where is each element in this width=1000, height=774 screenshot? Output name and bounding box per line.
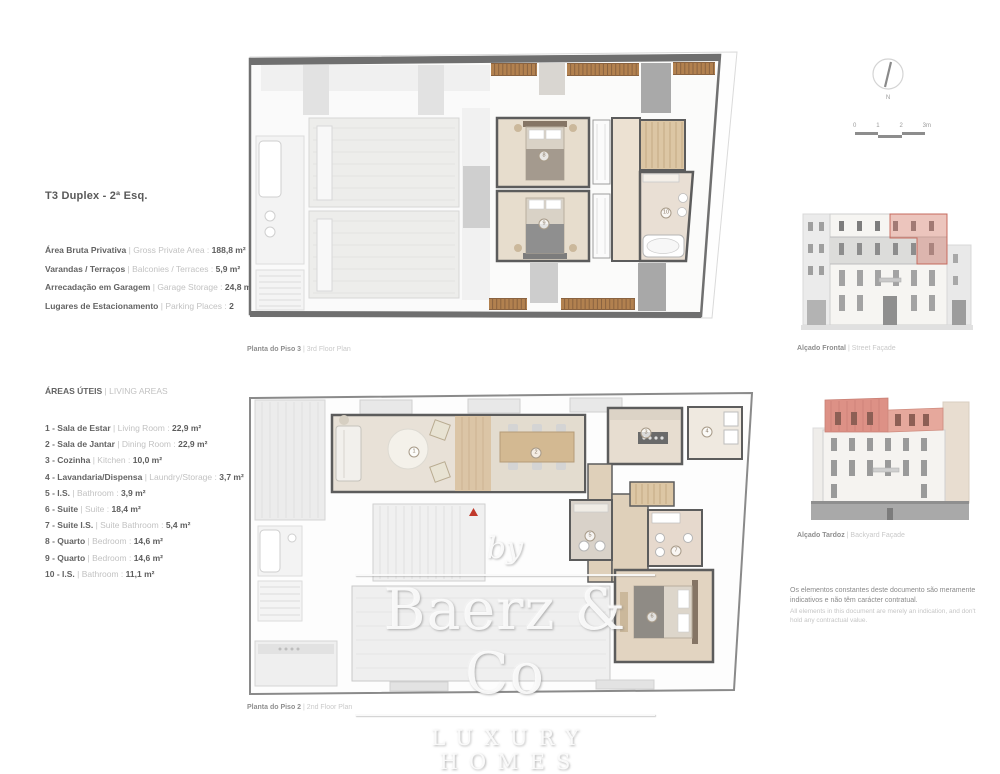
room-number-marker: 8 <box>539 151 550 162</box>
upper-plan-caption: Planta do Piso 3 | 3rd Floor Plan <box>247 346 351 353</box>
area-line: 6 - Suite | Suite : 18,4 m² <box>45 501 260 517</box>
front-facade-caption: Alçado Frontal | Street Façade <box>797 345 896 352</box>
disclaimer-en: All elements in this document are merely… <box>790 607 986 625</box>
scale-bar: 0123m <box>853 123 931 139</box>
summary-line: Lugares de Estacionamento | Parking Plac… <box>45 297 255 316</box>
back-facade <box>795 388 980 528</box>
summary-line: Varandas / Terraços | Balconies / Terrac… <box>45 260 255 279</box>
scale-label: 1 <box>876 123 879 129</box>
room-number-marker: 7 <box>671 546 682 557</box>
summary-line: Arrecadação em Garagem | Garage Storage … <box>45 278 255 297</box>
room-number-marker: 10 <box>661 208 672 219</box>
north-label: N <box>866 95 910 101</box>
upper-floor-plan <box>243 48 748 320</box>
area-line: 3 - Cozinha | Kitchen : 10,0 m² <box>45 452 260 468</box>
stairs <box>630 482 674 506</box>
wardrobe <box>593 194 610 258</box>
watermark-tagline: LUXURY HOMES <box>355 726 655 774</box>
back-facade-caption: Alçado Tardoz | Backyard Façade <box>797 532 905 539</box>
north-arrow: N <box>866 56 910 101</box>
summary-line: Área Bruta Privativa | Gross Private Are… <box>45 241 255 260</box>
room-number-marker: 5 <box>585 531 596 542</box>
room-number-marker: 3 <box>641 428 652 439</box>
area-line: 5 - I.S. | Bathroom : 3,9 m² <box>45 485 260 501</box>
roof-highlight <box>825 398 943 432</box>
area-line: 4 - Lavandaria/Dispensa | Laundry/Storag… <box>45 469 260 485</box>
upper-plan-adjacent-unit <box>253 65 490 311</box>
scale-label: 3m <box>923 123 931 129</box>
plant <box>339 415 349 425</box>
areas-list: 1 - Sala de Estar | Living Room : 22,9 m… <box>45 420 260 582</box>
brochure-page: { "header": { "title": "T3 Duplex - 2ª E… <box>0 0 1000 750</box>
area-line: 2 - Sala de Jantar | Dining Room : 22,9 … <box>45 436 260 452</box>
area-line: 8 - Quarto | Bedroom : 14,6 m² <box>45 533 260 549</box>
room-number-marker: 4 <box>702 427 713 438</box>
area-line: 10 - I.S. | Bathroom : 11,1 m² <box>45 566 260 582</box>
front-facade <box>795 192 980 342</box>
areas-title: ÁREAS ÚTEIS | LIVING AREAS <box>45 386 168 396</box>
lower-plan-caption: Planta do Piso 2 | 2nd Floor Plan <box>247 704 352 711</box>
living-dining-room <box>332 415 585 492</box>
balcony-deck-top <box>491 62 715 76</box>
bathroom-7 <box>648 510 702 566</box>
room-number-marker: 9 <box>539 219 550 230</box>
scale-label: 0 <box>853 123 856 129</box>
room-number-marker: 2 <box>531 448 542 459</box>
disclaimer: Os elementos constantes deste documento … <box>790 586 986 625</box>
suite-6 <box>615 570 713 662</box>
area-line: 7 - Suite I.S. | Suite Bathroom : 5,4 m² <box>45 517 260 533</box>
watermark-rule-bottom <box>355 714 655 716</box>
room-number-marker: 6 <box>647 612 658 623</box>
lower-floor-plan <box>240 386 760 704</box>
laundry <box>688 407 742 459</box>
room-number-marker: 1 <box>409 447 420 458</box>
balcony-deck-bottom <box>489 298 635 310</box>
unit-title: T3 Duplex - 2ª Esq. <box>45 190 148 202</box>
scale-label: 2 <box>899 123 902 129</box>
area-line: 1 - Sala de Estar | Living Room : 22,9 m… <box>45 420 260 436</box>
scale-bar-labels: 0123m <box>853 123 931 129</box>
compass-icon <box>866 56 910 94</box>
bench <box>620 592 628 632</box>
scale-bar-graphic <box>853 131 931 139</box>
area-line: 9 - Quarto | Bedroom : 14,6 m² <box>45 550 260 566</box>
summary-block: Área Bruta Privativa | Gross Private Are… <box>45 241 255 315</box>
stairs <box>640 120 685 170</box>
hallway <box>612 118 640 261</box>
wardrobe <box>593 120 610 184</box>
sofa <box>336 426 361 481</box>
disclaimer-pt: Os elementos constantes deste documento … <box>790 586 986 605</box>
